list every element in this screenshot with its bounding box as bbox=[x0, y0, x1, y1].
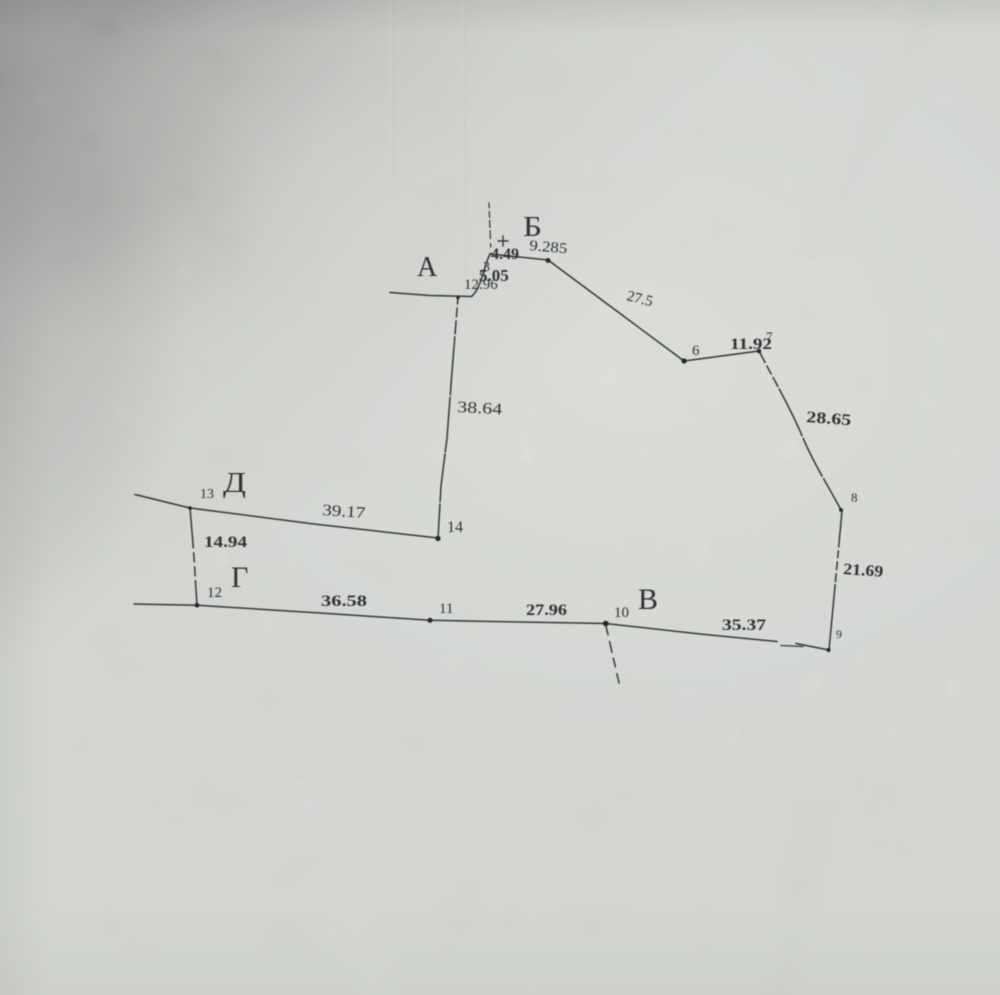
svg-text:9.285: 9.285 bbox=[529, 238, 568, 257]
svg-text:12.96: 12.96 bbox=[464, 277, 498, 293]
svg-text:14: 14 bbox=[447, 519, 463, 536]
svg-text:35.37: 35.37 bbox=[722, 617, 766, 634]
svg-text:27.5: 27.5 bbox=[625, 288, 654, 310]
svg-text:10: 10 bbox=[614, 605, 629, 621]
svg-text:38.64: 38.64 bbox=[457, 399, 503, 418]
svg-text:39.17: 39.17 bbox=[322, 502, 366, 522]
svg-text:Д: Д bbox=[223, 467, 246, 499]
svg-text:8: 8 bbox=[851, 490, 858, 505]
svg-text:27.96: 27.96 bbox=[526, 602, 567, 619]
svg-text:12: 12 bbox=[207, 585, 222, 601]
svg-text:14.94: 14.94 bbox=[204, 534, 247, 551]
svg-text:6: 6 bbox=[692, 343, 700, 359]
svg-text:А: А bbox=[417, 252, 438, 283]
svg-text:21.69: 21.69 bbox=[843, 561, 884, 581]
svg-text:28.65: 28.65 bbox=[806, 409, 852, 429]
svg-text:36.58: 36.58 bbox=[321, 593, 367, 610]
svg-text:4.49: 4.49 bbox=[491, 246, 519, 263]
svg-text:7: 7 bbox=[766, 329, 773, 344]
svg-text:13: 13 bbox=[200, 487, 214, 502]
svg-text:11: 11 bbox=[439, 601, 453, 617]
svg-text:Г: Г bbox=[231, 561, 248, 594]
svg-text:9: 9 bbox=[836, 627, 842, 641]
svg-text:В: В bbox=[638, 583, 658, 616]
